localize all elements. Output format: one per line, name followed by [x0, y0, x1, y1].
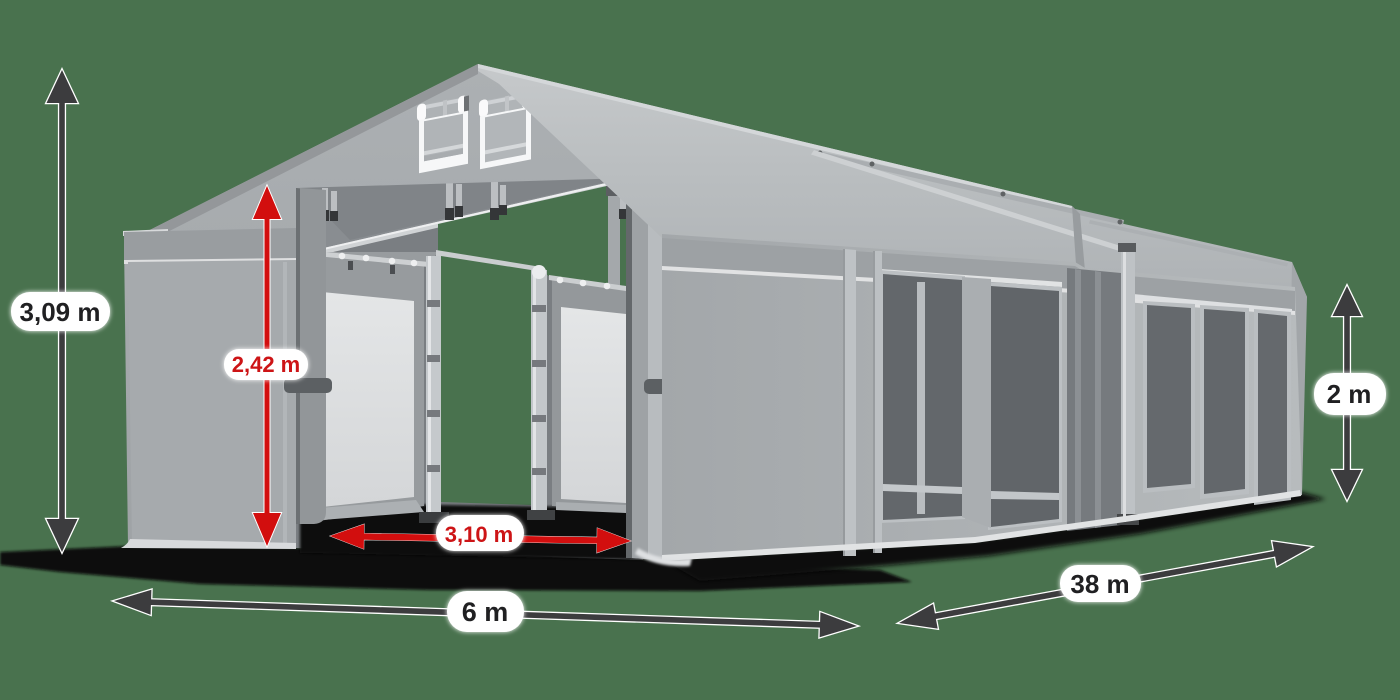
svg-text:3,10 m: 3,10 m [445, 522, 514, 547]
svg-text:2 m: 2 m [1327, 379, 1372, 409]
svg-text:38 m: 38 m [1070, 569, 1129, 599]
svg-text:3,09 m: 3,09 m [20, 297, 101, 327]
svg-text:6 m: 6 m [462, 597, 509, 627]
svg-text:2,42 m: 2,42 m [232, 352, 301, 377]
